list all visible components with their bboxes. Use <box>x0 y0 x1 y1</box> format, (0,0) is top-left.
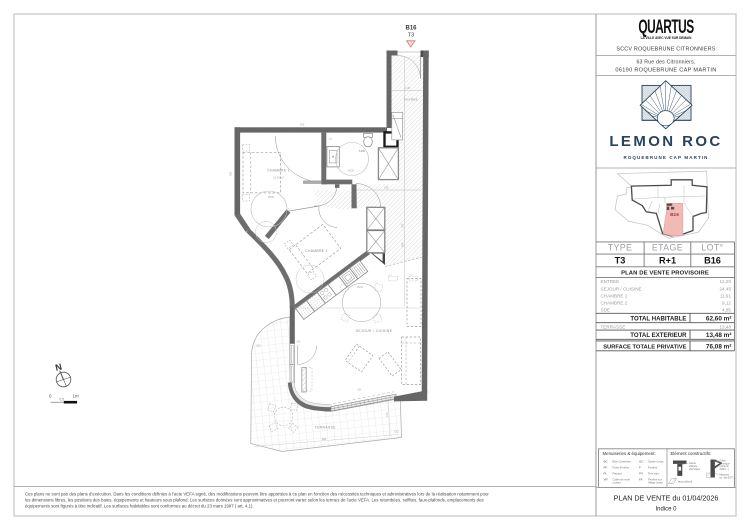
svg-text:06190 ROQUEBRUNE CAP MARTIN: 06190 ROQUEBRUNE CAP MARTIN <box>615 68 716 74</box>
svg-text:Bloc-Cuisinette: Bloc-Cuisinette <box>613 460 632 464</box>
svg-text:PLAN DE VENTE PROVISOIRE: PLAN DE VENTE PROVISOIRE <box>621 271 709 277</box>
svg-text:140: 140 <box>400 223 404 228</box>
svg-text:SDE: SDE <box>359 149 366 153</box>
svg-text:503: 503 <box>400 242 404 247</box>
svg-text:76,08 m²: 76,08 m² <box>706 343 732 350</box>
svg-text:Fixe vitré: Fixe vitré <box>648 472 659 476</box>
svg-text:T3: T3 <box>615 256 626 266</box>
svg-text:GC: GC <box>257 344 261 348</box>
svg-text:ROQUEBRUNE CAP MARTIN: ROQUEBRUNE CAP MARTIN <box>623 155 708 160</box>
svg-text:1.06: 1.06 <box>405 86 411 90</box>
svg-text:LOT°: LOT° <box>701 243 723 253</box>
svg-text:Menuiseries & équipement:: Menuiseries & équipement: <box>603 451 656 456</box>
svg-text:J+t: J+t <box>410 273 413 276</box>
svg-text:PV: PV <box>639 472 643 476</box>
svg-text:313: 313 <box>384 185 389 189</box>
svg-text:PL: PL <box>604 472 608 476</box>
svg-text:Fenêtre: Fenêtre <box>648 466 658 470</box>
svg-text:62,60 m²: 62,60 m² <box>706 315 732 322</box>
svg-text:Indice 0: Indice 0 <box>655 507 677 513</box>
svg-text:TERRASSE: TERRASSE <box>601 325 626 330</box>
svg-text:électrique: électrique <box>689 467 701 471</box>
svg-text:J+t: J+t <box>389 273 392 276</box>
svg-text:12,20: 12,20 <box>720 279 732 284</box>
svg-text:Ø150: Ø150 <box>357 286 364 289</box>
svg-text:Porte-Fenêtre: Porte-Fenêtre <box>613 466 630 470</box>
svg-text:LT: LT <box>329 137 332 141</box>
svg-text:CHAMBRE 2: CHAMBRE 2 <box>601 301 628 306</box>
svg-text:13,48 m²: 13,48 m² <box>706 332 732 339</box>
svg-text:24,45: 24,45 <box>720 286 732 291</box>
svg-text:0,5: 0,5 <box>60 398 65 402</box>
svg-text:CHAMBRE 1: CHAMBRE 1 <box>601 293 628 298</box>
svg-text:11,91: 11,91 <box>720 293 732 298</box>
svg-text:FA: FA <box>639 478 643 482</box>
svg-text:SEJOUR / CUISINE: SEJOUR / CUISINE <box>356 329 393 333</box>
svg-text:513: 513 <box>300 123 305 127</box>
svg-text:SEJOUR / CUISINE: SEJOUR / CUISINE <box>601 286 642 291</box>
svg-text:PLAN DE VENTE du 01/04/2026: PLAN DE VENTE du 01/04/2026 <box>614 494 719 503</box>
svg-text:LEMON ROC: LEMON ROC <box>609 133 722 150</box>
svg-text:B16: B16 <box>704 256 721 266</box>
svg-text:B16: B16 <box>670 212 679 218</box>
svg-text:faux plafond: faux plafond <box>678 480 693 484</box>
svg-text:Ø150: Ø150 <box>268 196 275 199</box>
svg-text:11,91 m²: 11,91 m² <box>273 176 284 180</box>
svg-text:R+1: R+1 <box>659 256 676 266</box>
svg-text:1m: 1m <box>73 394 80 399</box>
svg-text:les dimensions libres, les pos: les dimensions libres, les positions des… <box>25 498 485 503</box>
svg-text:Placard: Placard <box>613 472 623 476</box>
svg-text:Ø150: Ø150 <box>348 170 355 173</box>
svg-text:ENTREE: ENTREE <box>404 98 418 102</box>
svg-text:TOTAL HABITABLE: TOTAL HABITABLE <box>630 315 686 322</box>
svg-text:SDE: SDE <box>601 308 610 313</box>
svg-text:9,12: 9,12 <box>722 301 731 306</box>
svg-text:LA VILLE AVEC VUE SUR DEMAIN: LA VILLE AVEC VUE SUR DEMAIN <box>641 36 693 40</box>
svg-text:Ces plans ne sont pas des plan: Ces plans ne sont pas des plans d’exécut… <box>25 492 489 497</box>
svg-text:GC: GC <box>395 430 399 434</box>
svg-text:ENTREE: ENTREE <box>601 279 620 284</box>
svg-text:SCCV ROQUEBRUNE CITRONNIERS: SCCV ROQUEBRUNE CITRONNIERS <box>616 47 715 53</box>
svg-text:AVRIL...): AVRIL...) <box>720 468 730 471</box>
svg-text:302: 302 <box>229 171 233 176</box>
svg-text:TERRASSE: TERRASSE <box>315 426 337 430</box>
svg-text:UB: UB <box>358 389 362 392</box>
svg-text:Allège vitrée: Allège vitrée <box>648 481 663 485</box>
svg-text:PF: PF <box>604 466 608 470</box>
svg-text:SURFACE TOTALE PRIVATIVE: SURFACE TOTALE PRIVATIVE <box>603 344 686 350</box>
svg-text:F: F <box>639 466 641 470</box>
svg-text:4,85: 4,85 <box>722 308 731 313</box>
svg-text:ETAGE: ETAGE <box>652 243 683 253</box>
svg-text:CHAMBRE 2: CHAMBRE 2 <box>305 249 327 253</box>
svg-text:équipements sont figurés à tit: équipements sont figurés à titre indicat… <box>25 504 254 509</box>
svg-text:roulant: roulant <box>613 481 621 485</box>
svg-text:TOTAL EXTERIEUR: TOTAL EXTERIEUR <box>630 332 687 339</box>
svg-text:(cf. dito EXT): (cf. dito EXT) <box>720 476 734 479</box>
svg-text:63 Rue des Citronniers,: 63 Rue des Citronniers, <box>636 60 695 66</box>
svg-text:QUARTUS: QUARTUS <box>638 16 694 38</box>
svg-text:TYPE: TYPE <box>608 243 633 253</box>
svg-text:T3: T3 <box>408 33 414 39</box>
svg-text:UB: UB <box>297 341 301 344</box>
svg-text:CHAMBRE 1: CHAMBRE 1 <box>267 169 289 173</box>
svg-text:13,48: 13,48 <box>720 325 732 330</box>
svg-text:Elément constructifs:: Elément constructifs: <box>671 451 712 456</box>
svg-text:Garde-Corps: Garde-Corps <box>648 460 664 464</box>
svg-text:B16: B16 <box>405 26 417 32</box>
